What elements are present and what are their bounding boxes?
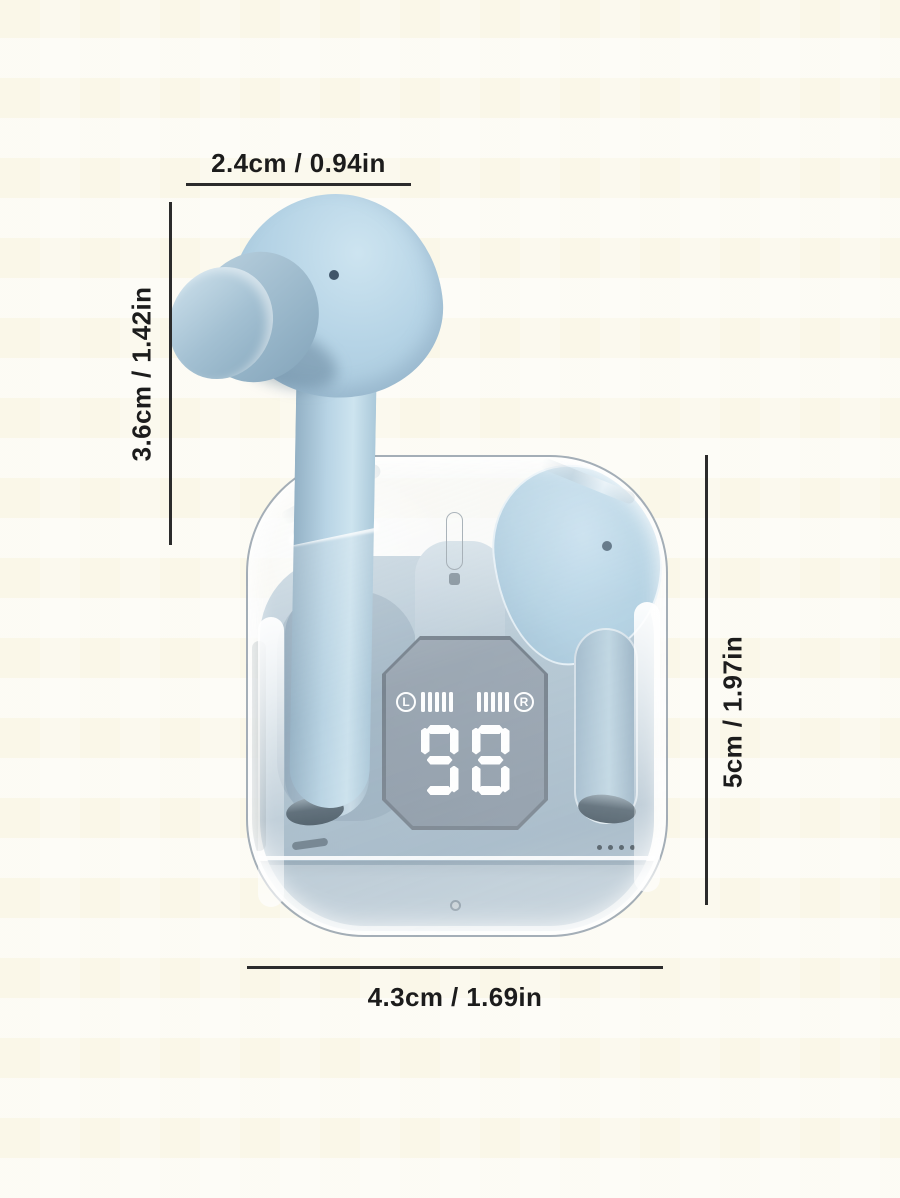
glass-facet-reflection-right	[539, 457, 636, 506]
dimension-line-right	[705, 455, 708, 905]
earbud-mic-hole	[329, 270, 339, 280]
dimension-label-top: 2.4cm / 0.94in	[186, 148, 411, 179]
dimension-label-left: 3.6cm / 1.42in	[127, 287, 158, 462]
glass-highlight-right	[634, 602, 660, 892]
product-dimension-figure: L R	[0, 0, 900, 1198]
dimension-line-bottom	[247, 966, 663, 969]
dimension-line-left	[169, 202, 172, 545]
glass-highlight-left	[258, 617, 284, 907]
dimension-label-right: 5cm / 1.97in	[718, 636, 749, 788]
dimension-label-bottom: 4.3cm / 1.69in	[305, 982, 605, 1013]
dimension-line-top	[186, 183, 411, 186]
